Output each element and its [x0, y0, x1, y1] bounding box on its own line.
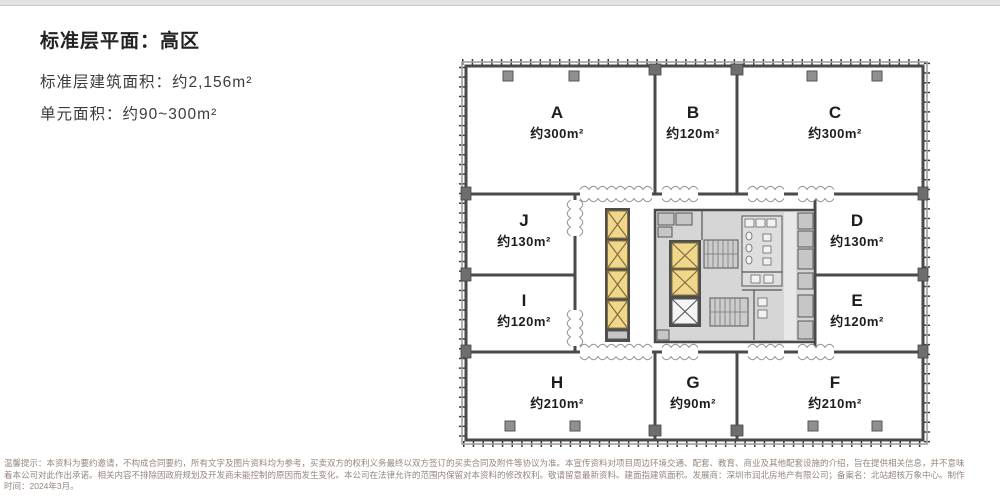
unit-j-letter: J [519, 211, 528, 230]
unit-b-letter: B [687, 103, 699, 122]
page-title: 标准层平面：高区 [40, 26, 200, 53]
unit-e-area: 约120m² [830, 314, 884, 329]
elevator-bank [605, 208, 630, 342]
unit-h-area: 约210m² [530, 396, 584, 411]
floor-area-line: 标准层建筑面积：约2,156m² [40, 70, 252, 92]
unit-f-area: 约210m² [808, 396, 862, 411]
unit-c-area: 约300m² [808, 126, 862, 141]
unit-e-letter: E [851, 291, 862, 310]
unit-b-area: 约120m² [666, 126, 720, 141]
unit-d-letter: D [851, 211, 863, 230]
disclaimer-line-3: 时间：2024年3月。 [4, 481, 996, 493]
unit-c-letter: C [829, 103, 841, 122]
unit-i-letter: I [522, 291, 527, 310]
top-strip [0, 0, 1000, 6]
disclaimer: 温馨提示：本资料为要约邀请，不构成合同要约，所有文字及图片资料均为参考，买卖双方… [4, 458, 996, 493]
disclaimer-line-2: 着本公司对此作出承诺。相关内容不排除因政府规划及开发商未能控制的原因而发生变化。… [4, 470, 996, 482]
service-core [655, 210, 815, 342]
unit-f-letter: F [830, 373, 840, 392]
unit-area-line: 单元面积：约90~300m² [40, 102, 217, 124]
unit-g-area: 约90m² [670, 396, 716, 411]
unit-h-letter: H [551, 373, 563, 392]
unit-a-area: 约300m² [530, 126, 584, 141]
floor-plan-svg: A 约300m² B 约120m² C 约300m² J 约130m² D 约1… [458, 58, 932, 450]
floor-plan: A 约300m² B 约120m² C 约300m² J 约130m² D 约1… [458, 58, 932, 450]
unit-g-letter: G [686, 373, 699, 392]
unit-d-area: 约130m² [830, 234, 884, 249]
disclaimer-line-1: 温馨提示：本资料为要约邀请，不构成合同要约，所有文字及图片资料均为参考，买卖双方… [4, 458, 996, 470]
unit-a-letter: A [551, 103, 563, 122]
unit-i-area: 约120m² [497, 314, 551, 329]
unit-j-area: 约130m² [497, 234, 551, 249]
